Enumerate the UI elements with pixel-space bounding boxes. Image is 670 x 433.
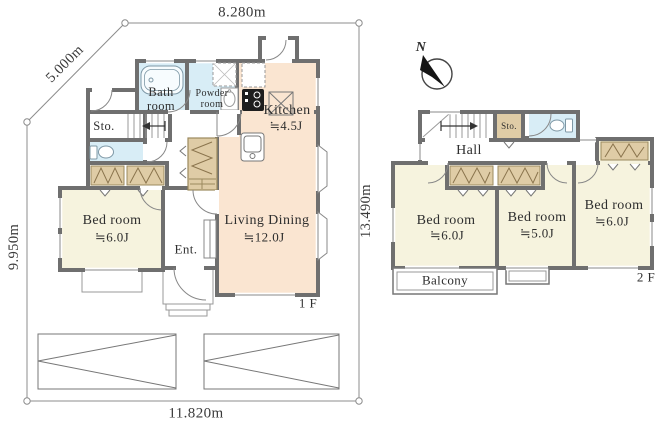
dim-right-label: 13.490m — [358, 184, 374, 238]
washing-machine-icon — [213, 63, 236, 86]
powder-room-label: Powder room — [188, 88, 236, 110]
dim-top-label: 8.280m — [218, 5, 266, 22]
living-dining-label: Living Dining — [225, 213, 310, 229]
entrance-porch — [163, 268, 213, 304]
storage-1f-label: Sto. — [93, 119, 114, 133]
bedroom2-2f-label: Bed room — [508, 210, 567, 226]
storage-2f-label: Sto. — [501, 121, 517, 131]
compass-north-label: N — [416, 40, 427, 56]
balcony-2f — [393, 268, 549, 294]
terrace — [82, 270, 142, 292]
bath-room-label: Bath room — [135, 85, 187, 113]
kitchen-sink-icon — [241, 133, 264, 161]
hall-label: Hall — [456, 143, 482, 159]
toilet-icon-2f — [550, 119, 573, 132]
refrigerator-icon — [242, 63, 265, 87]
kitchen-label: Kitchen — [263, 103, 310, 119]
porch-step — [169, 310, 207, 316]
bedroom-1f-label: Bed room — [83, 213, 142, 229]
entrance-closet — [204, 220, 216, 258]
bedroom1-2f-size-label: ≒6.0J — [430, 229, 464, 244]
stove-icon — [242, 89, 264, 111]
balcony-label: Balcony — [422, 274, 468, 289]
closet-living — [180, 138, 217, 190]
toilet-icon-1f — [90, 146, 114, 159]
parking-space-1 — [38, 334, 176, 389]
floor-plan: 8.280m 5.000m 9.950m 13.490m 11.820m N B… — [0, 0, 670, 433]
living-dining-size-label: ≒12.0J — [243, 231, 284, 246]
bedroom-1f-size-label: ≒6.0J — [95, 231, 129, 246]
kitchen-size-label: ≒4.5J — [270, 119, 303, 133]
floor1-label: 1 F — [299, 297, 317, 312]
bedroom3-2f-size-label: ≒6.0J — [595, 215, 629, 230]
parking-space-2 — [204, 334, 339, 389]
room-living-dining — [217, 112, 318, 295]
bedroom3-2f-label: Bed room — [585, 198, 644, 214]
porch-step — [166, 304, 210, 310]
entrance-label: Ent. — [175, 243, 198, 258]
dim-bottom-label: 11.820m — [168, 406, 223, 423]
bedroom1-2f-label: Bed room — [417, 213, 476, 229]
bedroom2-2f-size-label: ≒5.0J — [520, 227, 554, 242]
north-compass-icon — [420, 55, 452, 89]
dim-left-label: 9.950m — [6, 224, 22, 270]
floor2-label: 2 F — [637, 271, 655, 286]
